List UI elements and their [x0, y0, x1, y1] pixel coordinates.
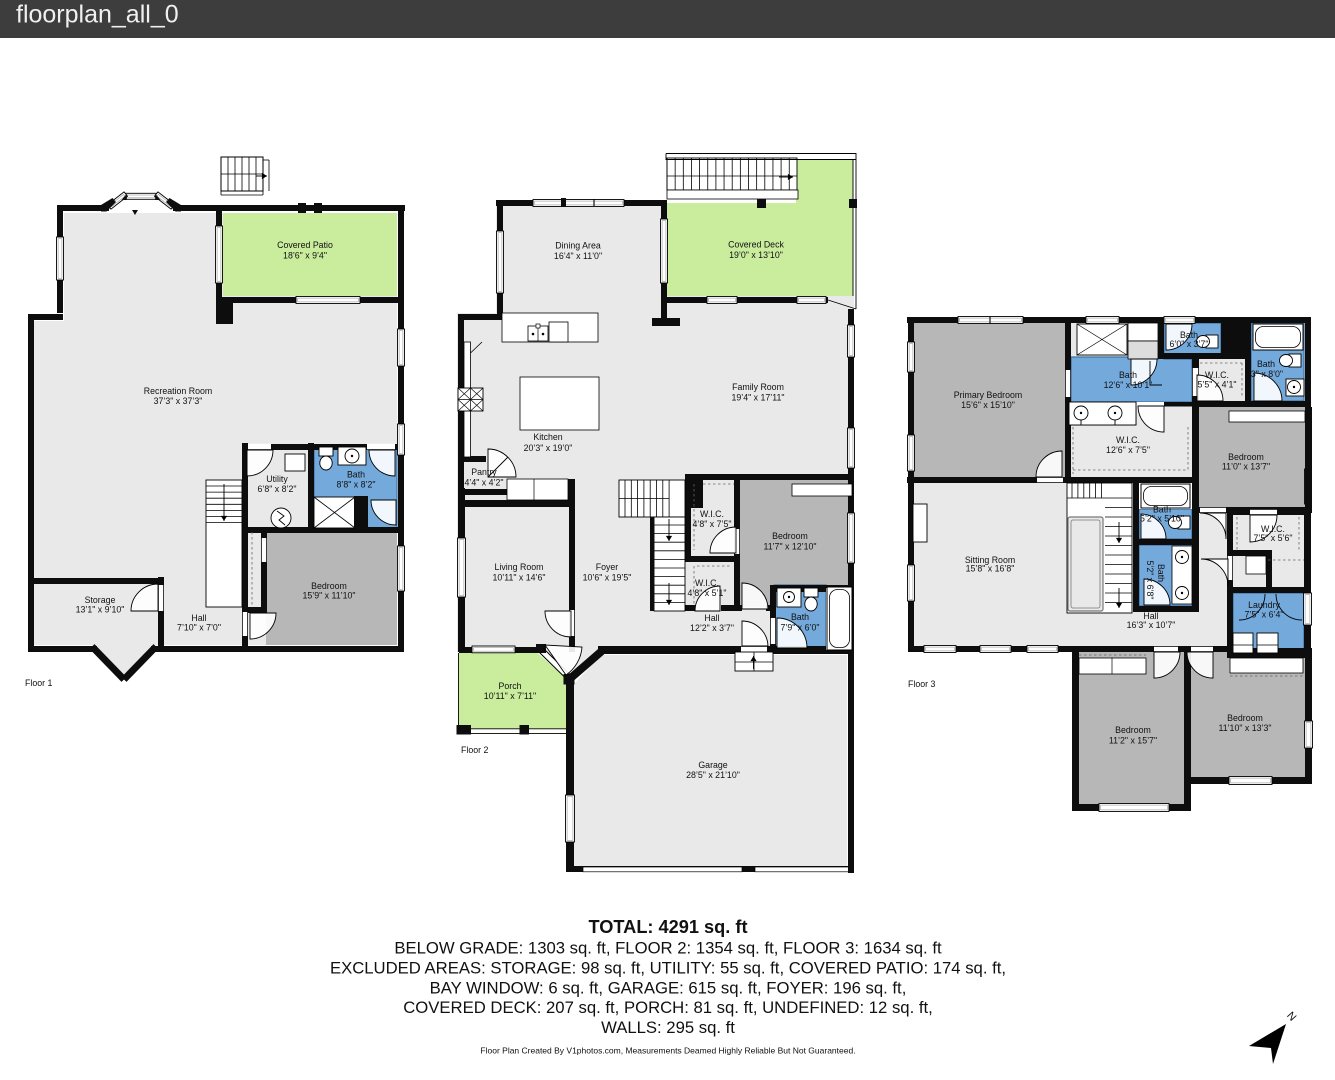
svg-text:6’8" x 8’2": 6’8" x 8’2": [257, 484, 296, 494]
svg-text:37’3" x 37’3": 37’3" x 37’3": [154, 396, 203, 406]
svg-text:12’6" x 7’5": 12’6" x 7’5": [1106, 445, 1150, 455]
svg-text:Recreation Room: Recreation Room: [144, 386, 212, 396]
svg-text:W.I.C.: W.I.C.: [1205, 370, 1229, 380]
svg-text:4’8" x 5’1": 4’8" x 5’1": [687, 588, 726, 598]
svg-text:TOTAL: 4291 sq. ft: TOTAL: 4291 sq. ft: [589, 917, 748, 937]
svg-text:13’1" x 9’10": 13’1" x 9’10": [76, 605, 125, 615]
svg-text:5’2" x 6’8": 5’2" x 6’8": [1145, 560, 1155, 599]
svg-text:Kitchen: Kitchen: [533, 432, 562, 442]
svg-text:Hall: Hall: [191, 613, 206, 623]
svg-text:10’11" x 14’6": 10’11" x 14’6": [492, 573, 545, 583]
svg-text:11’2" x 15’7": 11’2" x 15’7": [1109, 736, 1157, 746]
svg-text:10’6" x 19’5": 10’6" x 19’5": [583, 573, 632, 583]
svg-text:Floor 3: Floor 3: [908, 679, 935, 689]
svg-text:15’9" x 11’10": 15’9" x 11’10": [302, 591, 355, 601]
svg-text:Utility: Utility: [266, 474, 288, 484]
svg-text:Porch: Porch: [499, 681, 522, 691]
svg-text:BELOW GRADE: 1303 sq. ft, FLOO: BELOW GRADE: 1303 sq. ft, FLOOR 2: 1354 …: [394, 939, 942, 958]
svg-text:15’6" x 15’10": 15’6" x 15’10": [961, 400, 1015, 410]
svg-text:11’7" x 12’10": 11’7" x 12’10": [763, 542, 816, 552]
svg-text:8’8" x 8’2": 8’8" x 8’2": [336, 480, 375, 490]
svg-text:Storage: Storage: [85, 595, 116, 605]
svg-text:Floor Plan Created By V1photos: Floor Plan Created By V1photos.com, Meas…: [480, 1046, 855, 1056]
svg-text:6’0" x 3’7": 6’0" x 3’7": [1169, 339, 1208, 349]
svg-text:19’0" x 13’10": 19’0" x 13’10": [729, 250, 783, 260]
svg-text:Family Room: Family Room: [732, 382, 784, 392]
svg-text:W.I.C.: W.I.C.: [695, 578, 719, 588]
svg-text:5’2" x 5’10": 5’2" x 5’10": [1140, 514, 1184, 524]
svg-text:16’4" x 11’0": 16’4" x 11’0": [554, 251, 602, 261]
svg-text:Dining Area: Dining Area: [555, 241, 601, 251]
svg-text:floorplan_all_0: floorplan_all_0: [16, 1, 179, 29]
svg-text:Floor 2: Floor 2: [461, 745, 488, 755]
svg-text:16’3" x 10’7": 16’3" x 10’7": [1127, 620, 1176, 630]
svg-text:Bath: Bath: [791, 612, 809, 622]
svg-text:18’6" x 9’4": 18’6" x 9’4": [283, 251, 327, 261]
svg-text:Bath: Bath: [1119, 370, 1137, 380]
svg-text:Bedroom: Bedroom: [1115, 725, 1151, 735]
svg-text:28’5" x 21’10": 28’5" x 21’10": [686, 770, 740, 780]
svg-text:Bedroom: Bedroom: [772, 531, 808, 541]
svg-text:4’4" x 4’2": 4’4" x 4’2": [464, 478, 503, 488]
svg-text:7’9" x 6’0": 7’9" x 6’0": [780, 623, 819, 633]
svg-text:7’10" x 7’0": 7’10" x 7’0": [177, 623, 221, 633]
svg-text:5’5" x 4’1": 5’5" x 4’1": [1197, 380, 1236, 390]
svg-text:Foyer: Foyer: [596, 562, 619, 572]
svg-text:Laundry: Laundry: [1248, 600, 1280, 610]
svg-text:Bedroom: Bedroom: [1227, 713, 1263, 723]
svg-text:Bedroom: Bedroom: [1228, 452, 1264, 462]
svg-text:Hall: Hall: [704, 613, 719, 623]
svg-text:Bath: Bath: [347, 470, 365, 480]
svg-text:W.I.C.: W.I.C.: [700, 509, 724, 519]
svg-text:WALLS: 295 sq. ft: WALLS: 295 sq. ft: [601, 1018, 735, 1037]
svg-text:12’6" x 10’1": 12’6" x 10’1": [1104, 380, 1153, 390]
svg-text:Living Room: Living Room: [495, 562, 544, 572]
svg-text:Bedroom: Bedroom: [311, 581, 347, 591]
svg-text:BAY WINDOW: 6 sq. ft, GARAGE:: BAY WINDOW: 6 sq. ft, GARAGE: 615 sq. ft…: [430, 979, 907, 998]
svg-text:Bath: Bath: [1257, 359, 1275, 369]
svg-text:20’3" x 19’0": 20’3" x 19’0": [524, 443, 573, 453]
svg-text:11’0" x 13’7": 11’0" x 13’7": [1222, 462, 1270, 472]
svg-text:7’5" x 5’6": 7’5" x 5’6": [1253, 533, 1292, 543]
svg-text:Garage: Garage: [698, 760, 727, 770]
svg-text:Floor 1: Floor 1: [25, 678, 52, 688]
svg-text:15’8" x 16’8": 15’8" x 16’8": [966, 564, 1015, 574]
svg-text:4’8" x 7’5": 4’8" x 7’5": [692, 519, 731, 529]
svg-text:7’5" x 6’4": 7’5" x 6’4": [1244, 610, 1283, 620]
svg-text:12’2" x 3’7": 12’2" x 3’7": [690, 623, 734, 633]
svg-text:19’4" x 17’11": 19’4" x 17’11": [731, 393, 784, 403]
svg-text:Pantry: Pantry: [471, 467, 497, 477]
svg-text:EXCLUDED AREAS: STORAGE: 98 sq: EXCLUDED AREAS: STORAGE: 98 sq. ft, UTIL…: [330, 959, 1006, 978]
svg-text:Bath: Bath: [1156, 564, 1166, 582]
svg-text:10’11" x 7’11": 10’11" x 7’11": [484, 691, 536, 701]
svg-text:Covered Deck: Covered Deck: [728, 240, 784, 250]
svg-text:W.I.C.: W.I.C.: [1116, 435, 1140, 445]
svg-text:COVERED DECK: 207 sq. ft, PORC: COVERED DECK: 207 sq. ft, PORCH: 81 sq. …: [403, 998, 933, 1017]
svg-text:’3" x 8’0": ’3" x 8’0": [1249, 369, 1283, 379]
svg-text:Primary Bedroom: Primary Bedroom: [954, 390, 1022, 400]
svg-text:11’10" x 13’3": 11’10" x 13’3": [1218, 723, 1271, 733]
svg-text:Covered Patio: Covered Patio: [277, 240, 333, 250]
